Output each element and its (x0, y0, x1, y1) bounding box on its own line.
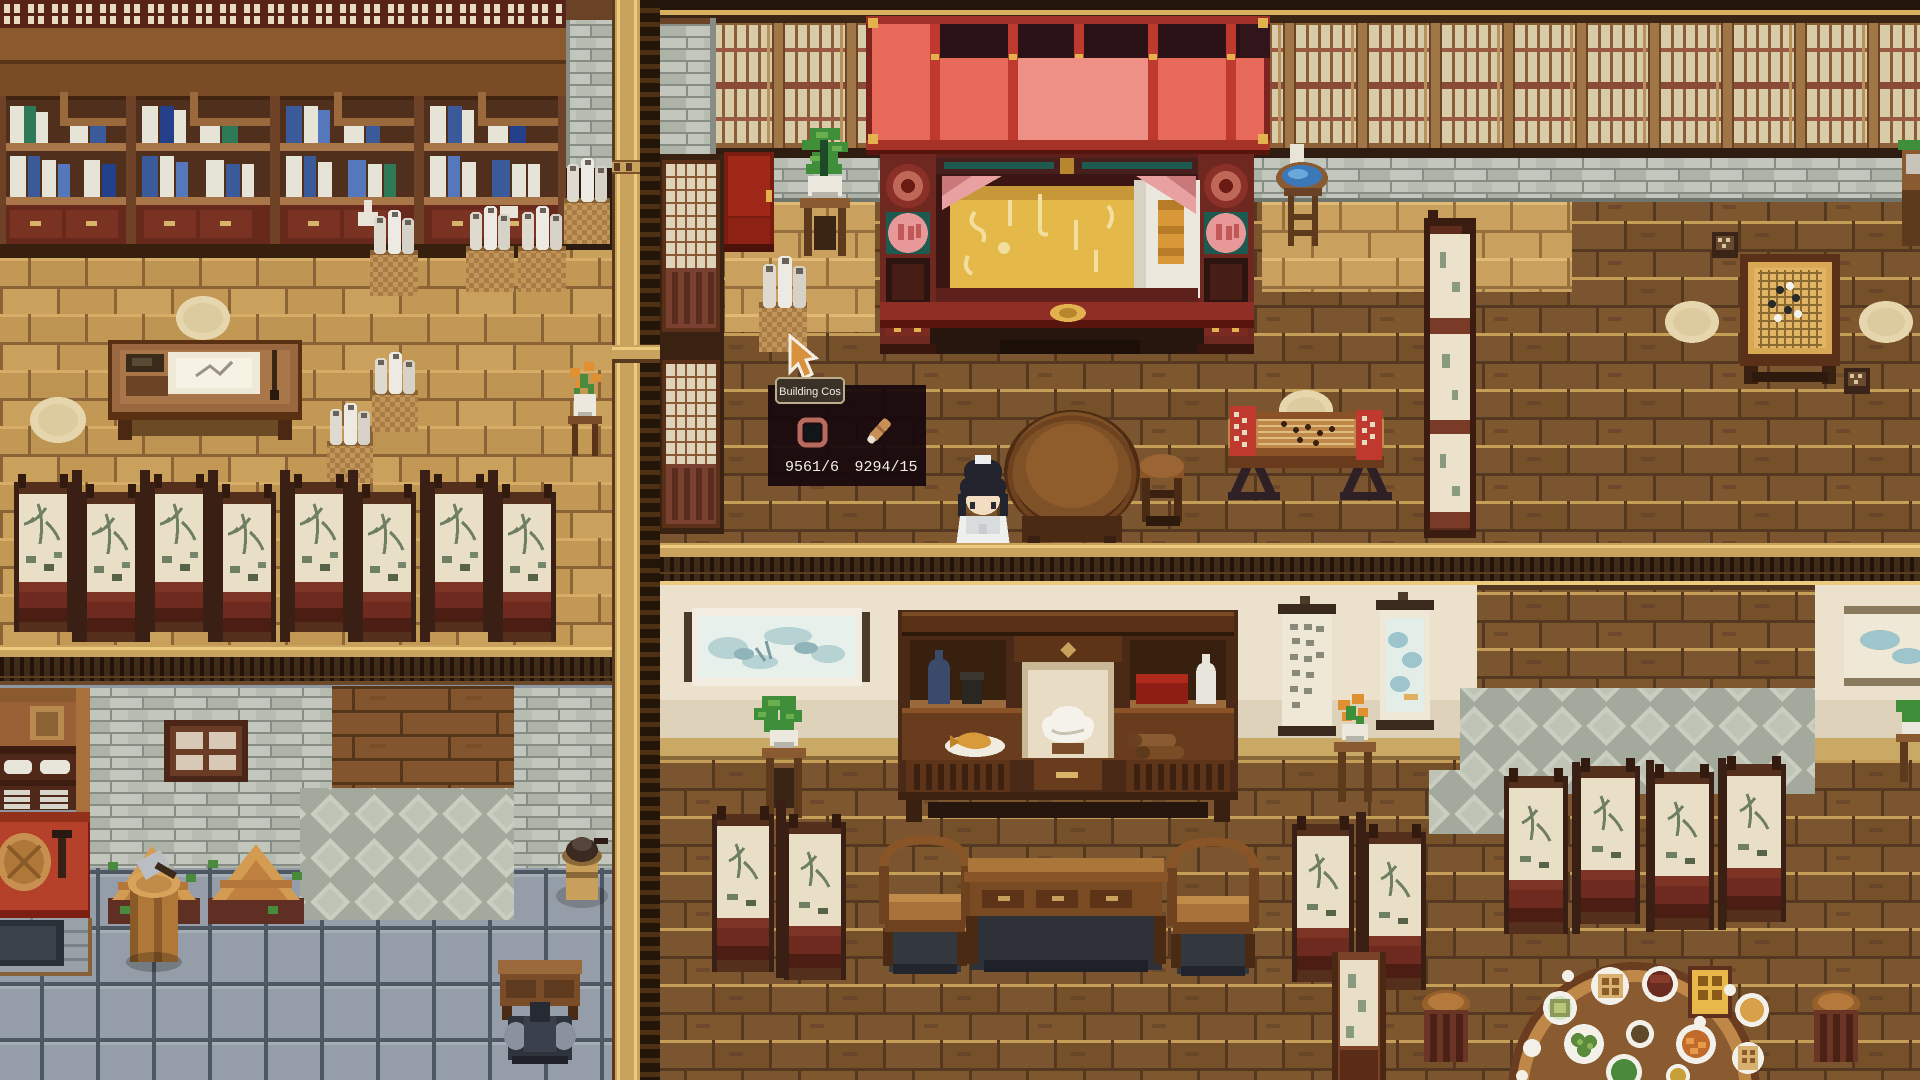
svg-text:9294/15: 9294/15 (854, 459, 917, 476)
svg-text:9561/6: 9561/6 (785, 459, 839, 476)
svg-text:Building Cos: Building Cos (779, 386, 841, 398)
